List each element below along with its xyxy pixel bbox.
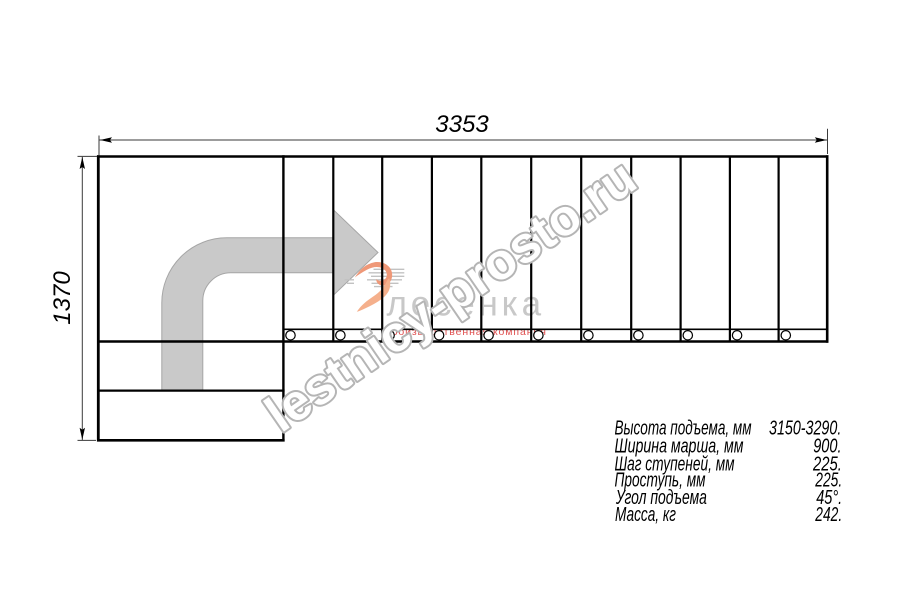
svg-text:242.: 242. [815, 504, 843, 526]
svg-text:3353: 3353 [435, 111, 489, 138]
svg-text:Масса, кг: Масса, кг [615, 504, 676, 526]
svg-text:1370: 1370 [49, 271, 76, 325]
